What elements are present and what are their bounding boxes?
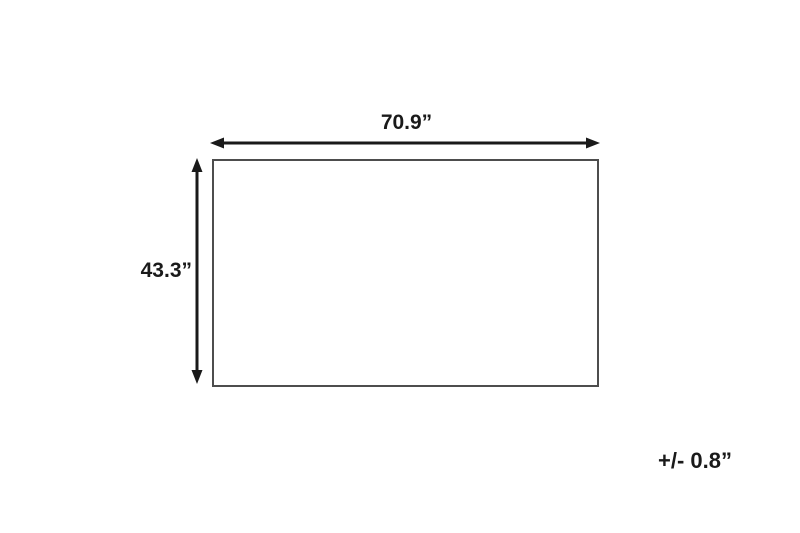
arrowhead-left [210, 138, 224, 149]
arrowhead-up [192, 158, 203, 172]
arrowhead-down [192, 370, 203, 384]
height-dimension-arrow [190, 158, 204, 384]
height-dimension-label: 43.3” [100, 260, 192, 281]
tolerance-label: +/- 0.8” [658, 450, 732, 472]
product-outline-rectangle [212, 159, 599, 387]
width-dimension-label: 70.9” [212, 112, 601, 133]
dimension-diagram: 70.9” 43.3” +/- 0.8” [0, 0, 800, 533]
arrowhead-right [586, 138, 600, 149]
width-dimension-arrow [210, 136, 600, 150]
